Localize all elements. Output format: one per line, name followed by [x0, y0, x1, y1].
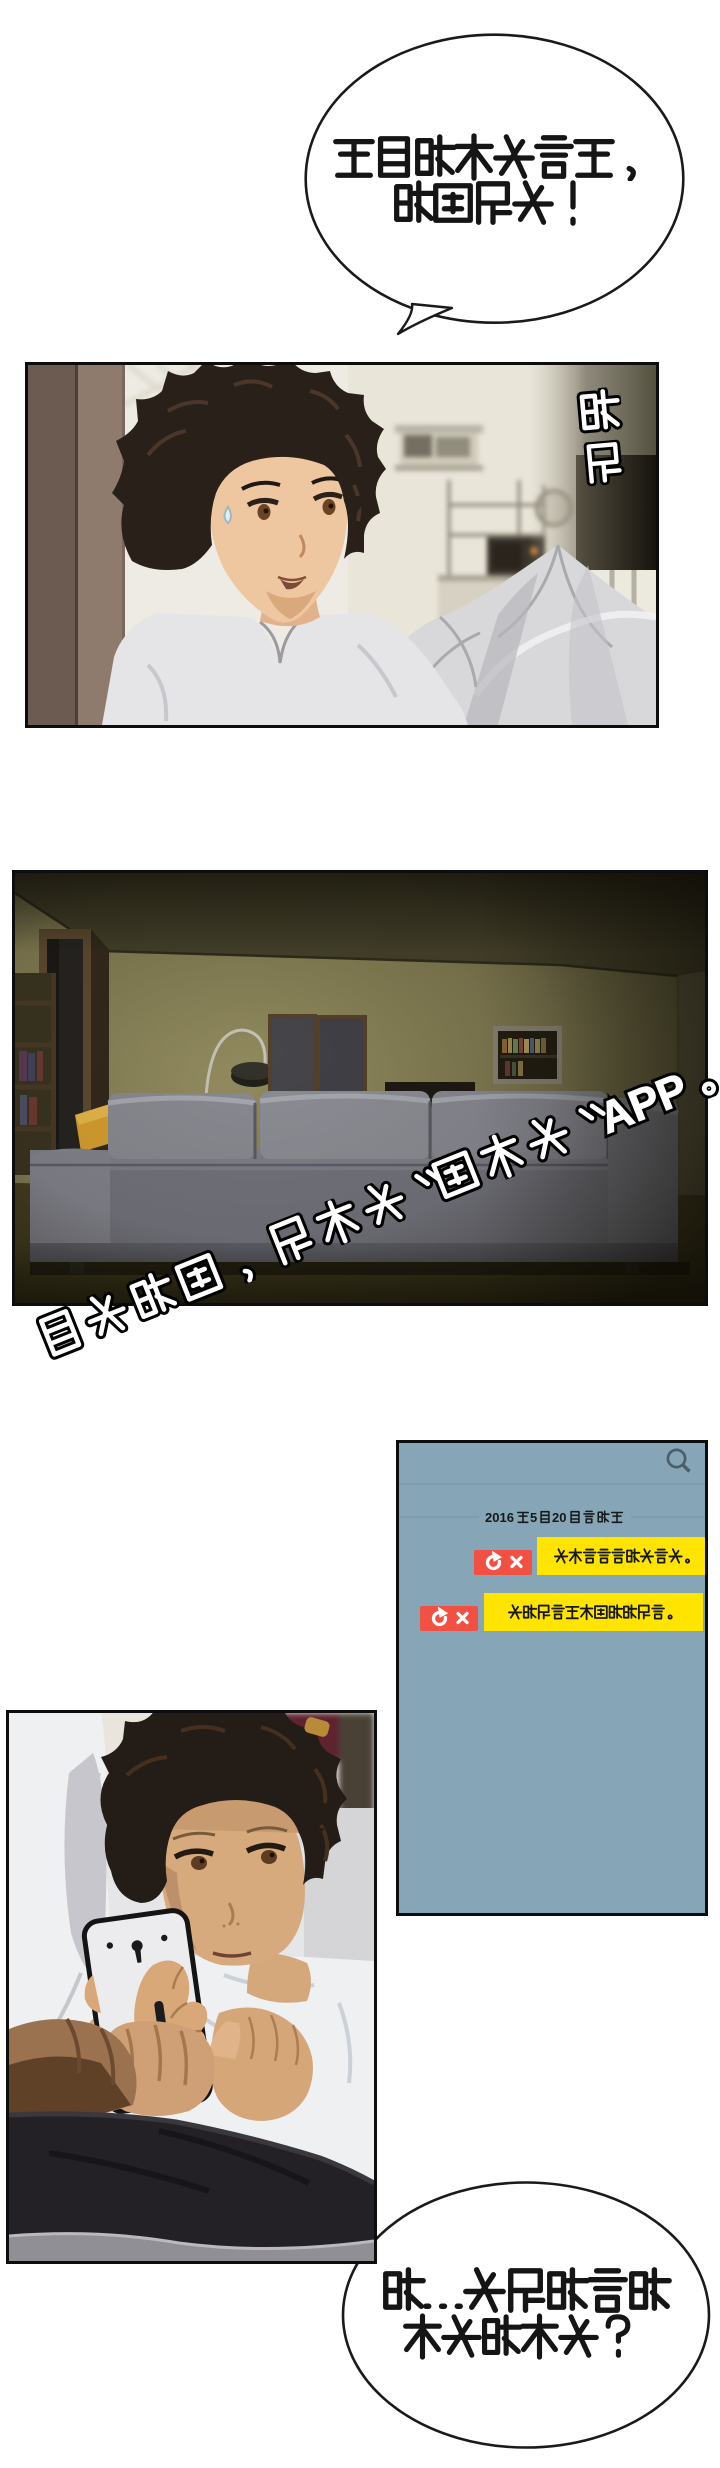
svg-text:20: 20 [552, 1510, 566, 1525]
svg-text:2016: 2016 [485, 1510, 514, 1525]
svg-text:5: 5 [530, 1510, 537, 1525]
